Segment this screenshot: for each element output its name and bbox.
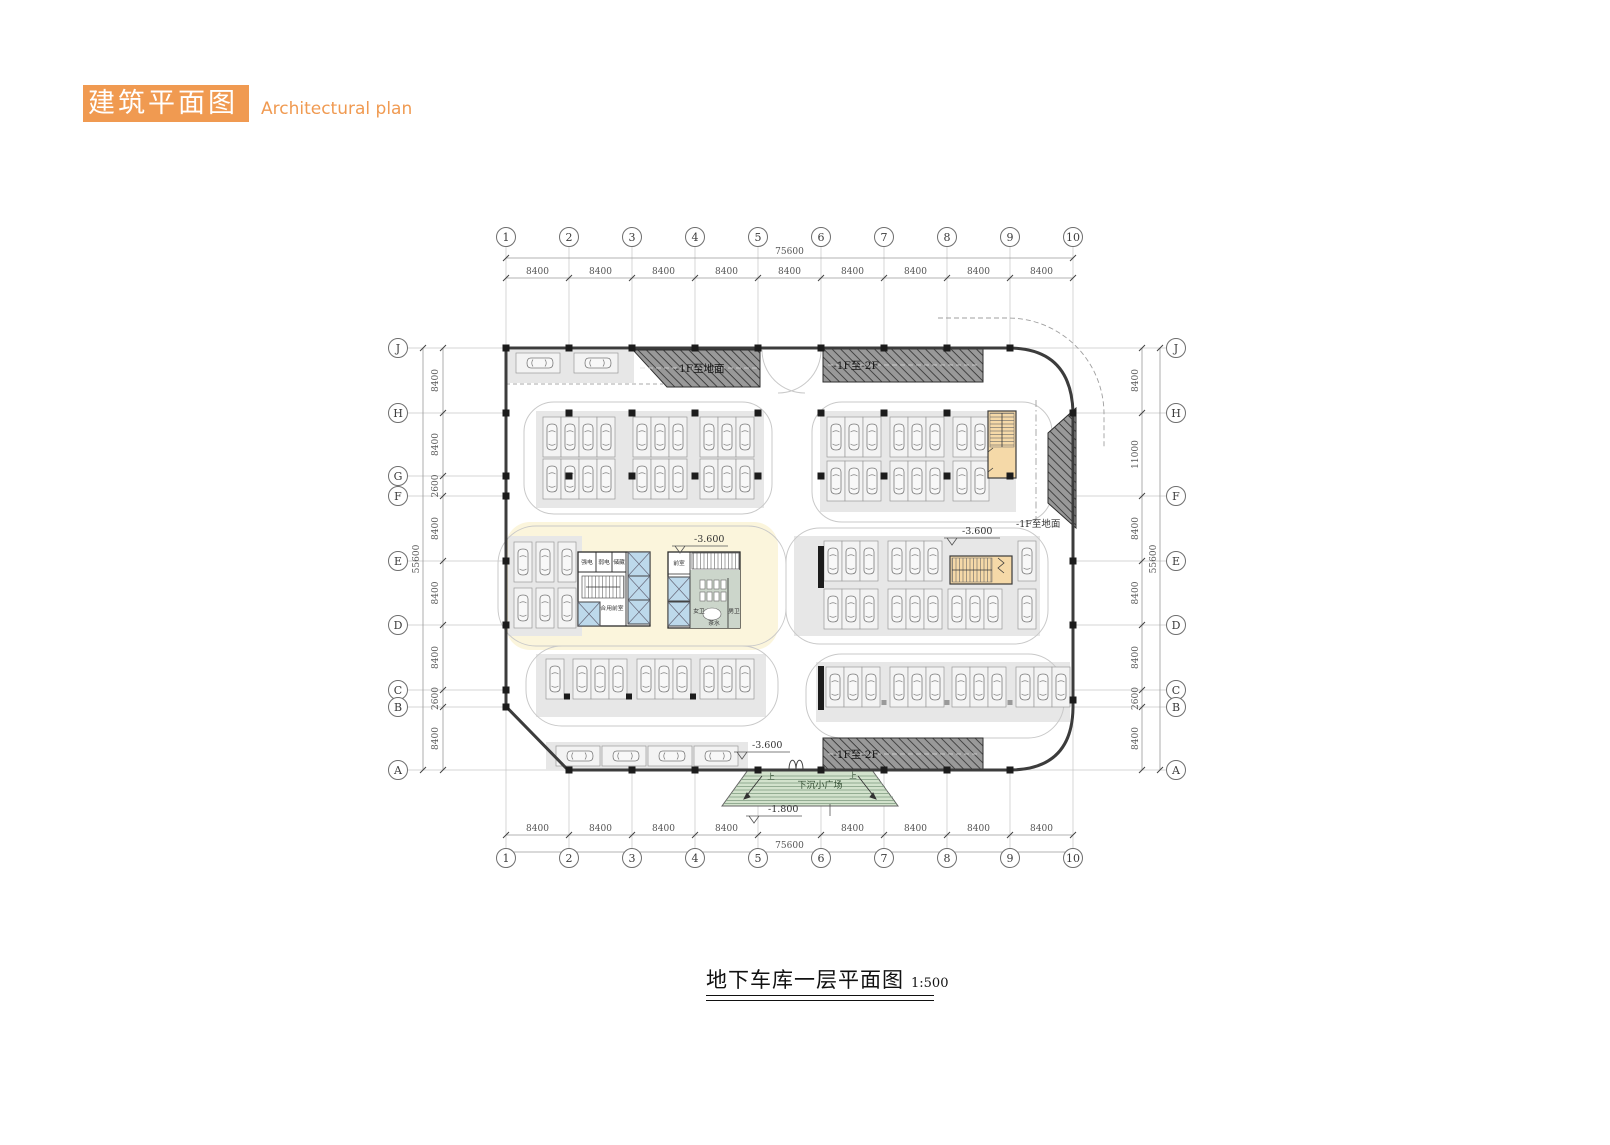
dim-bottom-seg-7: 8400 — [967, 824, 990, 834]
dim-bottom-seg-1: 8400 — [526, 824, 549, 834]
ramp-bottom-label: -1F至-2F — [833, 749, 879, 761]
dim-right-seg-4: 8400 — [1131, 581, 1141, 604]
room-female-wc: 女卫 — [693, 607, 705, 615]
grid-bubble-top-5: 5 — [755, 231, 762, 244]
dim-top-seg-1: 8400 — [526, 267, 549, 277]
grid-bubble-bottom-7: 7 — [881, 852, 888, 865]
grid-bubble-top-2: 2 — [566, 231, 573, 244]
grid-bubble-right-C: C — [1172, 684, 1180, 697]
dim-top-seg-3: 8400 — [652, 267, 675, 277]
dim-left-seg-1: 8400 — [431, 369, 441, 392]
dim-right-seg-3: 8400 — [1131, 517, 1141, 540]
stair-block-mid — [950, 556, 1012, 584]
dim-bottom-seg-3: 8400 — [652, 824, 675, 834]
dim-bottom-total: 75600 — [775, 841, 804, 851]
dim-right-seg-2: 11000 — [1131, 440, 1141, 469]
room-lobby: 前室 — [673, 559, 685, 567]
grid-bubble-left-B: B — [394, 701, 402, 714]
dim-top-seg-7: 8400 — [904, 267, 927, 277]
grid-bubble-left-F: F — [394, 490, 402, 503]
grid-bubble-bottom-9: 9 — [1007, 852, 1014, 865]
ramp-right-label: -1F至地面 — [1016, 518, 1060, 530]
grid-bubble-left-G: G — [394, 470, 403, 483]
grid-bubble-bottom-6: 6 — [818, 852, 825, 865]
dim-left-total: 55600 — [412, 544, 422, 573]
dim-top-total: 75600 — [775, 247, 804, 257]
grid-bubble-bottom-4: 4 — [692, 852, 699, 865]
drawing-title: 地下车库一层平面图 — [706, 968, 904, 992]
grid-bubble-bottom-8: 8 — [944, 852, 951, 865]
grid-bubble-top-1: 1 — [503, 231, 510, 244]
plaza-label: 下沉小广场 — [797, 779, 842, 791]
room-strong-power: 强电 — [581, 558, 593, 566]
dim-top-seg-5: 8400 — [778, 267, 801, 277]
grid-bubble-top-6: 6 — [818, 231, 825, 244]
dim-left-seg-3: 2600 — [431, 474, 441, 497]
stair-block-upper — [988, 411, 1016, 478]
room-male-wc: 男卫 — [728, 608, 740, 615]
grid-bubble-bottom-2: 2 — [566, 852, 573, 865]
grid-bubble-left-C: C — [394, 684, 402, 697]
ramp-top-left-label: -1F至地面 — [675, 362, 724, 375]
grid-bubble-left-A: A — [393, 764, 403, 777]
grid-bubble-top-3: 3 — [629, 231, 636, 244]
grid-bubble-bottom-1: 1 — [503, 852, 510, 865]
drawing-scale: 1:500 — [911, 976, 948, 991]
grid-bubble-top-8: 8 — [944, 231, 951, 244]
grid-bubble-right-H: H — [1171, 407, 1181, 420]
dim-left-seg-5: 8400 — [431, 581, 441, 604]
dim-right-seg-7: 8400 — [1131, 727, 1141, 750]
grid-bubble-left-D: D — [394, 619, 403, 632]
grid-bubble-left-H: H — [393, 407, 403, 420]
plaza-up-left: 上 — [767, 772, 775, 781]
dim-bottom-seg-5: 8400 — [841, 824, 864, 834]
grid-bubble-right-J: J — [1173, 342, 1178, 355]
dim-top-seg-9: 8400 — [1030, 267, 1053, 277]
caption-underline — [706, 995, 934, 1001]
grid-bubble-top-9: 9 — [1007, 231, 1014, 244]
plaza-up-right: 上 — [849, 771, 857, 780]
grid-bubble-right-A: A — [1171, 764, 1181, 777]
grid-bubble-bottom-10: 10 — [1066, 852, 1080, 865]
level-core-text: -3.600 — [694, 534, 724, 545]
level-plaza-text: -1.800 — [768, 804, 798, 815]
grid-bubble-top-7: 7 — [881, 231, 888, 244]
dim-bottom-seg-4: 8400 — [715, 824, 738, 834]
grid-bubble-right-E: E — [1172, 555, 1180, 568]
dim-left-seg-7: 2600 — [431, 687, 441, 710]
room-shared-lobby: 合用前室 — [600, 604, 623, 612]
grid-bubble-top-4: 4 — [692, 231, 699, 244]
room-weak-power: 弱电 — [598, 558, 610, 566]
dim-left-seg-4: 8400 — [431, 517, 441, 540]
dim-right-seg-5: 8400 — [1131, 646, 1141, 669]
dim-top-seg-4: 8400 — [715, 267, 738, 277]
dim-bottom-seg-8: 8400 — [1030, 824, 1053, 834]
dim-left-seg-6: 8400 — [431, 646, 441, 669]
room-storage: 储藏 — [613, 558, 625, 566]
ramp-top-right-label: -1F至-2F — [833, 360, 879, 372]
dim-left-seg-2: 8400 — [431, 433, 441, 456]
grid-bubble-bottom-3: 3 — [629, 852, 636, 865]
dim-bottom-seg-6: 8400 — [904, 824, 927, 834]
dim-bottom-seg-2: 8400 — [589, 824, 612, 834]
grid-bubbles-top — [497, 228, 1083, 247]
dim-top-seg-2: 8400 — [589, 267, 612, 277]
grid-bubble-left-E: E — [394, 555, 402, 568]
dim-left-seg-8: 8400 — [431, 727, 441, 750]
level-marker-plaza — [746, 816, 802, 823]
drawing-caption: 地下车库一层平面图1:500 — [706, 964, 938, 994]
grid-bubble-right-F: F — [1172, 490, 1180, 503]
grid-bubble-bottom-5: 5 — [755, 852, 762, 865]
dim-top-seg-8: 8400 — [967, 267, 990, 277]
dim-right-seg-1: 8400 — [1131, 369, 1141, 392]
dim-top-seg-6: 8400 — [841, 267, 864, 277]
grid-bubble-right-D: D — [1172, 619, 1181, 632]
room-pantry: 茶水 — [708, 619, 720, 627]
level-bottom-text: -3.600 — [752, 740, 782, 751]
dim-right-seg-6: 2600 — [1131, 687, 1141, 710]
grid-bubble-left-J: J — [395, 342, 400, 355]
grid-bubbles-bottom — [497, 849, 1083, 868]
level-right-text: -3.600 — [962, 526, 992, 537]
grid-bubble-top-10: 10 — [1066, 231, 1080, 244]
grid-bubble-right-B: B — [1172, 701, 1180, 714]
dim-right-total: 55600 — [1149, 544, 1159, 573]
